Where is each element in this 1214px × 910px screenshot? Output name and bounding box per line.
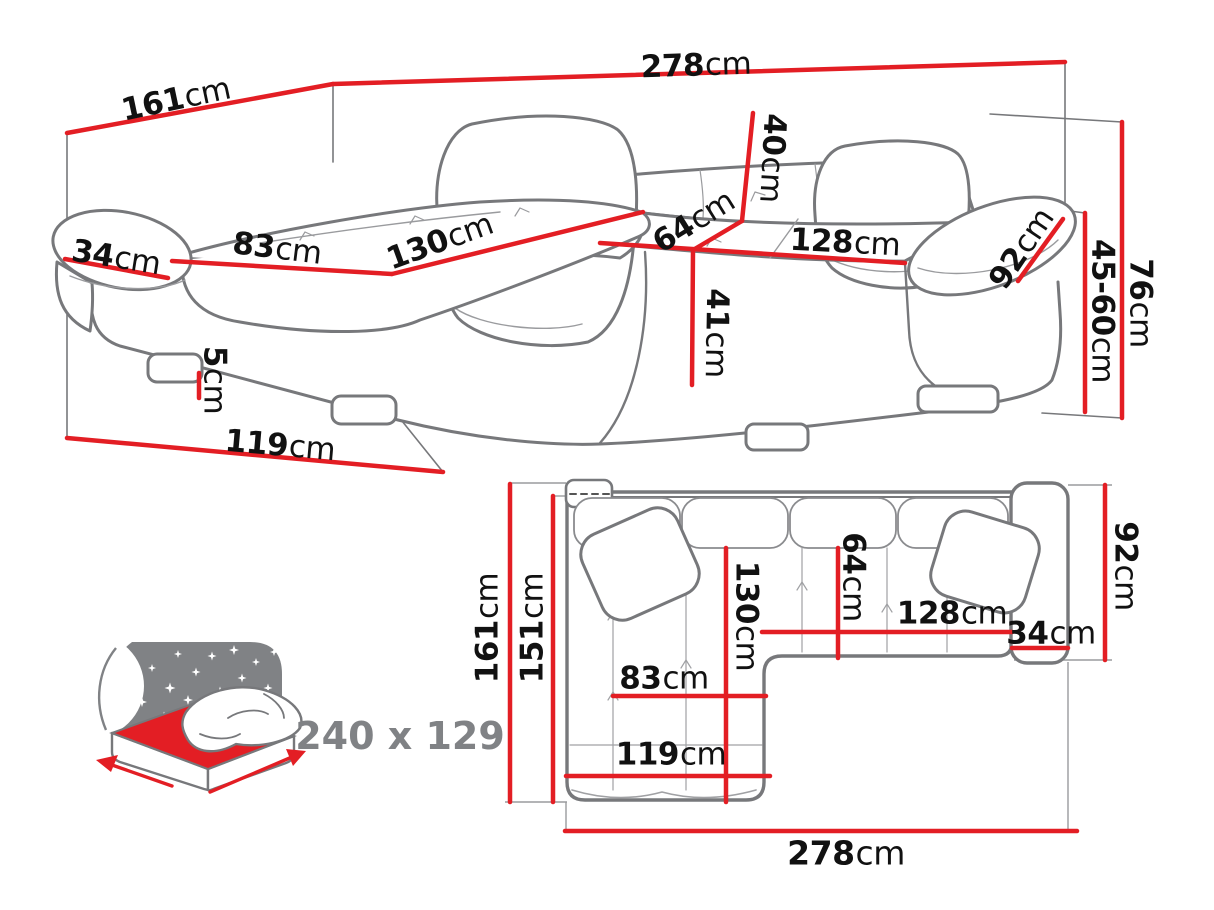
- moon-swoosh: [40, 634, 144, 738]
- dim-plan-seat-depth: 64cm: [838, 532, 869, 621]
- dim-perspective-armrest-height: 45-60cm: [1087, 239, 1118, 383]
- dim-perspective-backrest-height: 40cm: [754, 113, 790, 204]
- dim-perspective-total-width: 278cm: [640, 49, 751, 84]
- dim-perspective-seat-width: 128cm: [789, 225, 901, 262]
- dim-perspective-leg-height: 5cm: [199, 346, 230, 414]
- dim-plan-seat-width: 128cm: [897, 599, 1007, 630]
- bed-icon: [40, 634, 306, 792]
- sleeping-area-size-label: 240 x 129: [295, 717, 505, 755]
- dim-perspective-seat-height: 41cm: [700, 288, 733, 378]
- dim-plan-total-depth: 161cm: [473, 573, 504, 683]
- dim-plan-chaise-length: 130cm: [731, 561, 762, 671]
- dim-plan-armrest-width: 34cm: [1006, 619, 1095, 650]
- dimension-diagram: 278cm 161cm 34cm 83cm 130cm 40cm 64cm 12…: [0, 0, 1214, 910]
- dim-plan-chaise-cushion-width: 83cm: [619, 664, 708, 695]
- dim-plan-inner-depth: 151cm: [518, 573, 549, 683]
- dim-plan-chaise-width: 119cm: [616, 740, 726, 771]
- sofa-line-art: [0, 0, 1214, 910]
- dim-plan-total-width: 278cm: [787, 837, 905, 870]
- dim-plan-armrest-length: 92cm: [1110, 521, 1141, 610]
- dim-perspective-chaise-width: 119cm: [224, 426, 337, 467]
- dim-perspective-total-height: 76cm: [1125, 258, 1156, 347]
